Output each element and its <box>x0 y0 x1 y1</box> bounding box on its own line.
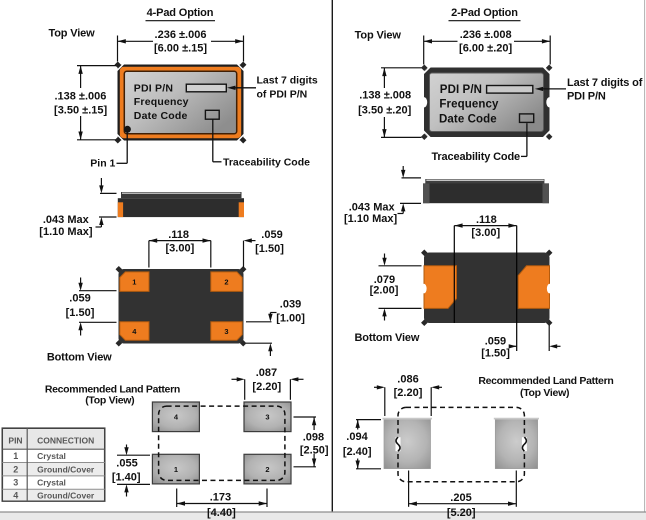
svg-text:PDI P/N: PDI P/N <box>567 91 606 103</box>
svg-text:3: 3 <box>265 413 269 422</box>
svg-text:[6.00 ±.20]: [6.00 ±.20] <box>459 43 512 55</box>
svg-text:[1.50]: [1.50] <box>255 243 284 255</box>
svg-text:PDI P/N: PDI P/N <box>134 82 173 94</box>
svg-text:Crystal: Crystal <box>37 451 66 461</box>
svg-text:of PDI P/N: of PDI P/N <box>257 88 308 100</box>
svg-text:1: 1 <box>13 451 18 461</box>
svg-text:Bottom View: Bottom View <box>355 332 420 344</box>
svg-text:1: 1 <box>132 278 136 287</box>
svg-text:Recommended Land Pattern: Recommended Land Pattern <box>478 375 613 387</box>
svg-text:.043 Max: .043 Max <box>43 214 90 226</box>
svg-text:Traceability Code: Traceability Code <box>223 156 310 168</box>
svg-text:[5.20]: [5.20] <box>447 507 476 519</box>
svg-text:[2.50]: [2.50] <box>300 445 329 457</box>
svg-text:[3.00]: [3.00] <box>166 242 195 254</box>
svg-text:.043 Max: .043 Max <box>349 201 396 213</box>
svg-text:.059: .059 <box>69 293 90 305</box>
svg-text:1: 1 <box>174 465 178 474</box>
svg-text:.086: .086 <box>397 373 418 385</box>
svg-text:.039: .039 <box>280 299 301 311</box>
svg-text:[1.10 Max]: [1.10 Max] <box>39 226 93 238</box>
svg-text:4-Pad Option: 4-Pad Option <box>147 7 214 19</box>
svg-text:[2.20]: [2.20] <box>394 387 423 399</box>
svg-text:4: 4 <box>13 490 18 500</box>
svg-text:.055: .055 <box>116 457 137 469</box>
svg-text:.059: .059 <box>485 336 506 348</box>
svg-text:2: 2 <box>13 464 18 474</box>
svg-text:Pin 1: Pin 1 <box>90 158 115 170</box>
svg-text:CONNECTION: CONNECTION <box>37 435 94 445</box>
svg-text:.094: .094 <box>346 431 368 443</box>
svg-text:.138 ±.008: .138 ±.008 <box>359 90 411 102</box>
svg-text:.205: .205 <box>450 492 471 504</box>
svg-text:Ground/Cover: Ground/Cover <box>37 464 95 474</box>
svg-text:(Top View): (Top View) <box>85 395 134 407</box>
svg-text:2: 2 <box>224 278 228 287</box>
svg-text:(Top View): (Top View) <box>520 387 569 399</box>
svg-text:Traceability Code: Traceability Code <box>431 151 520 163</box>
svg-text:Last 7 digits: Last 7 digits <box>257 74 318 86</box>
svg-text:.059: .059 <box>261 229 282 241</box>
svg-text:PIN: PIN <box>8 435 22 445</box>
svg-text:.118: .118 <box>476 214 497 226</box>
svg-text:.098: .098 <box>303 432 324 444</box>
svg-text:Crystal: Crystal <box>37 478 66 488</box>
svg-text:Frequency: Frequency <box>439 99 499 111</box>
svg-text:PDI P/N: PDI P/N <box>440 84 482 96</box>
svg-text:[3.50 ±.20]: [3.50 ±.20] <box>358 105 411 117</box>
svg-text:Date Code: Date Code <box>134 110 188 122</box>
svg-text:[2.00]: [2.00] <box>370 285 399 297</box>
svg-text:.087: .087 <box>256 367 277 379</box>
svg-text:Ground/Cover: Ground/Cover <box>37 490 95 500</box>
svg-text:.118: .118 <box>168 229 189 241</box>
svg-text:.236 ±.008: .236 ±.008 <box>460 29 512 41</box>
svg-text:[3.50 ±.15]: [3.50 ±.15] <box>54 104 107 116</box>
svg-text:[1.50]: [1.50] <box>481 347 510 359</box>
svg-text:.138 ±.006: .138 ±.006 <box>54 91 106 103</box>
svg-text:[1.40]: [1.40] <box>112 471 141 483</box>
svg-text:Date Code: Date Code <box>439 113 497 125</box>
svg-text:Top View: Top View <box>355 30 402 42</box>
svg-text:[3.00]: [3.00] <box>471 227 500 239</box>
svg-text:.236 ±.006: .236 ±.006 <box>155 29 207 41</box>
svg-text:2: 2 <box>265 465 269 474</box>
svg-text:[6.00 ±.15]: [6.00 ±.15] <box>154 43 207 55</box>
svg-text:3: 3 <box>224 327 228 336</box>
svg-text:2-Pad Option: 2-Pad Option <box>451 7 518 19</box>
svg-text:[1.00]: [1.00] <box>276 312 305 324</box>
svg-text:Bottom View: Bottom View <box>47 352 112 364</box>
svg-text:Top View: Top View <box>48 28 95 40</box>
svg-text:.173: .173 <box>210 491 231 503</box>
svg-text:Last 7 digits of: Last 7 digits of <box>567 77 643 89</box>
svg-text:[1.50]: [1.50] <box>66 307 95 319</box>
svg-text:[2.40]: [2.40] <box>343 446 372 458</box>
svg-text:[2.20]: [2.20] <box>252 381 281 393</box>
svg-text:[1.10 Max]: [1.10 Max] <box>344 213 398 225</box>
svg-text:[4.40]: [4.40] <box>207 507 236 519</box>
svg-text:Frequency: Frequency <box>134 96 189 108</box>
svg-text:3: 3 <box>13 478 18 488</box>
